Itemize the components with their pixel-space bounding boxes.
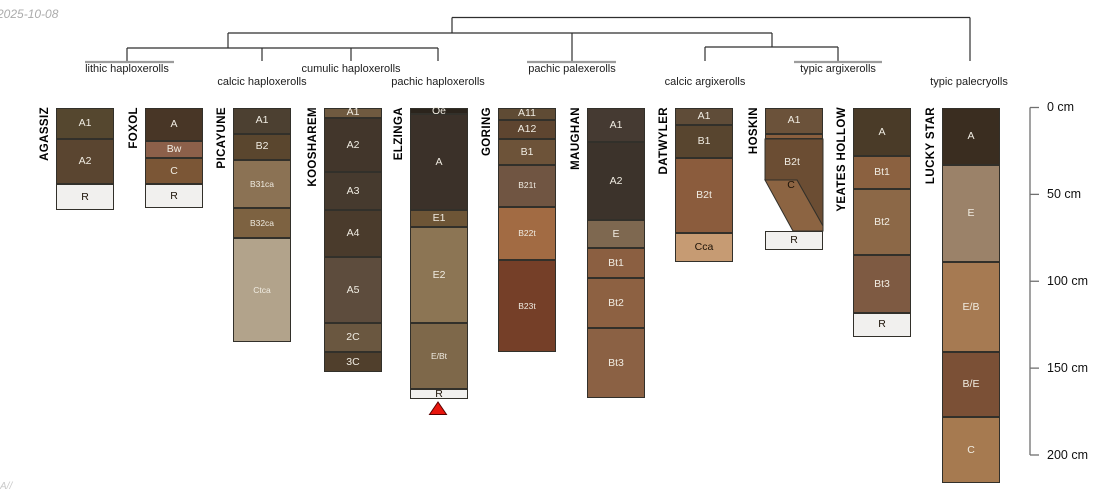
horizon-label: A2	[347, 140, 360, 151]
horizon-label: 2C	[346, 332, 359, 343]
horizon-label: A12	[518, 124, 537, 135]
horizon: Oe	[410, 108, 468, 115]
horizon: B1	[675, 125, 733, 158]
horizon-label: E/B	[963, 302, 980, 313]
horizon: A	[145, 108, 203, 141]
horizon: A3	[324, 172, 382, 210]
horizon: E	[942, 165, 1000, 262]
profile-marker-triangle-icon	[430, 402, 447, 415]
horizon-label: B32ca	[250, 219, 274, 228]
horizon: B32ca	[233, 208, 291, 238]
horizon: B21t	[498, 165, 556, 207]
horizon: Bt2	[853, 189, 911, 255]
horizon-label: Bt1	[874, 167, 890, 178]
horizon-label: Bt2	[874, 217, 890, 228]
group-label-lithic-haploxerolls: lithic haploxerolls	[85, 64, 169, 75]
horizon: 2C	[324, 323, 382, 353]
horizon-label: 3C	[346, 357, 359, 368]
horizon: Bt2	[587, 278, 645, 328]
horizon-label: Bt3	[874, 279, 890, 290]
horizon: B23t	[498, 260, 556, 352]
horizon-label: R	[878, 319, 886, 330]
horizon-label: E	[612, 229, 619, 240]
rock-horizon: R	[56, 184, 114, 210]
depth-tick-label: 100 cm	[1047, 275, 1088, 288]
depth-tick-label: 50 cm	[1047, 188, 1081, 201]
horizon: Bw	[145, 141, 203, 158]
horizon: A	[853, 108, 911, 157]
horizon: Bt1	[853, 156, 911, 189]
watermark: A//	[0, 481, 12, 492]
horizon-label: R	[790, 235, 798, 246]
horizon: E	[587, 220, 645, 248]
group-label-cumulic-haploxerolls: cumulic haploxerolls	[301, 64, 400, 75]
horizon-label: A	[967, 131, 974, 142]
group-label-calcic-haploxerolls: calcic haploxerolls	[217, 77, 306, 88]
horizon: A2	[56, 139, 114, 184]
horizon-label: R	[435, 389, 443, 400]
horizon-label: A4	[347, 228, 360, 239]
horizon	[765, 134, 823, 139]
horizon-label: A1	[347, 107, 360, 118]
horizon: B2	[233, 134, 291, 160]
horizon-label: B21t	[518, 181, 536, 190]
horizon-label: A1	[698, 111, 711, 122]
horizon-label: A	[878, 127, 885, 138]
horizon: 3C	[324, 352, 382, 371]
horizon: E2	[410, 227, 468, 323]
group-label-typic-palecryolls: typic palecryolls	[930, 77, 1008, 88]
horizon-label: B1	[698, 136, 711, 147]
horizon: Ctca	[233, 238, 291, 342]
group-label-typic-argixerolls: typic argixerolls	[800, 64, 876, 75]
horizon-label: A1	[79, 118, 92, 129]
horizon-label: A2	[79, 156, 92, 167]
horizon: E/B	[942, 262, 1000, 352]
rock-horizon: R	[853, 313, 911, 337]
horizon-label: B2t	[696, 190, 712, 201]
horizon-label: B2t	[784, 157, 800, 168]
horizon-label: Ctca	[253, 286, 270, 295]
depth-tick-label: 150 cm	[1047, 362, 1088, 375]
profile-name-label: KOOSHAREM	[307, 107, 320, 187]
horizon: B22t	[498, 207, 556, 261]
horizon-label: A1	[788, 115, 801, 126]
profile-name-label: YEATES HOLLOW	[836, 107, 849, 212]
horizon-label: C	[967, 445, 975, 456]
horizon-label: B/E	[963, 379, 980, 390]
horizon-label: A2	[610, 176, 623, 187]
horizon: A1	[587, 108, 645, 143]
horizon-label: C	[170, 166, 178, 177]
horizon: Bt3	[587, 328, 645, 398]
horizon: Bt1	[587, 248, 645, 278]
horizon-label: R	[81, 192, 89, 203]
horizon: A2	[324, 118, 382, 172]
horizon-label: A	[435, 157, 442, 168]
soil-profile-plot: 2025-10-08 A// 0 cm50 cm100 cm150 cm200 …	[0, 0, 1100, 500]
horizon-label: E1	[433, 213, 446, 224]
horizon-label: A11	[518, 108, 536, 119]
horizon: B31ca	[233, 160, 291, 209]
horizon: A1	[56, 108, 114, 139]
rock-horizon: R	[145, 184, 203, 208]
profile-name-label: FOXOL	[128, 107, 141, 149]
horizon: A1	[233, 108, 291, 134]
horizon-label: B31ca	[250, 180, 274, 189]
horizon-label: C	[787, 180, 795, 191]
horizon: A4	[324, 210, 382, 257]
horizon: C	[145, 158, 203, 184]
horizon-label: B23t	[518, 302, 536, 311]
horizon-label: A3	[347, 186, 360, 197]
rock-horizon: R	[410, 389, 468, 399]
horizon-label: E2	[433, 270, 446, 281]
group-label-pachic-palexerolls: pachic palexerolls	[528, 64, 615, 75]
horizon: A	[410, 114, 468, 210]
profile-name-label: AGASSIZ	[39, 107, 52, 161]
horizon: A5	[324, 257, 382, 323]
profile-name-label: PICAYUNE	[216, 107, 229, 169]
profile-name-label: DATWYLER	[658, 107, 671, 175]
horizon: A2	[587, 142, 645, 220]
profile-name-label: LUCKY STAR	[925, 107, 938, 184]
group-label-pachic-haploxerolls: pachic haploxerolls	[391, 77, 485, 88]
horizon-label: E/Bt	[431, 352, 447, 361]
horizon: A12	[498, 120, 556, 139]
horizon: A1	[765, 108, 823, 134]
horizon: E/Bt	[410, 323, 468, 389]
horizon-label: B2	[256, 141, 269, 152]
horizon-label: E	[967, 208, 974, 219]
horizon-label: A1	[610, 120, 623, 131]
profile-name-label: HOSKIN	[748, 107, 761, 154]
group-label-calcic-argixerolls: calcic argixerolls	[665, 77, 746, 88]
horizon: A	[942, 108, 1000, 165]
horizon-label: Bw	[167, 144, 182, 155]
horizon: A11	[498, 108, 556, 120]
depth-tick-label: 0 cm	[1047, 101, 1074, 114]
horizon: B2t	[675, 158, 733, 233]
horizon: E1	[410, 210, 468, 227]
horizon-label: R	[170, 191, 178, 202]
horizon: A1	[324, 108, 382, 118]
horizon: Bt3	[853, 255, 911, 312]
horizon-label: B1	[521, 147, 534, 158]
horizon: B/E	[942, 352, 1000, 416]
horizon-label: B22t	[518, 229, 536, 238]
depth-tick-label: 200 cm	[1047, 449, 1088, 462]
horizon: Cca	[675, 233, 733, 263]
horizon-label: A1	[256, 115, 269, 126]
rock-horizon: R	[765, 231, 823, 250]
horizon: B1	[498, 139, 556, 165]
horizon-label: Bt3	[608, 358, 624, 369]
date-stamp: 2025-10-08	[0, 7, 58, 21]
horizon-label: Bt2	[608, 298, 624, 309]
horizon: A1	[675, 108, 733, 125]
horizon-label: A5	[347, 285, 360, 296]
profile-name-label: ELZINGA	[393, 107, 406, 160]
horizon-label: A	[170, 119, 177, 130]
profile-name-label: GORING	[481, 107, 494, 156]
horizon-label: Bt1	[608, 258, 624, 269]
horizon: C	[942, 417, 1000, 483]
horizon-label: Cca	[695, 242, 714, 253]
profile-name-label: MAUGHAN	[570, 107, 583, 170]
